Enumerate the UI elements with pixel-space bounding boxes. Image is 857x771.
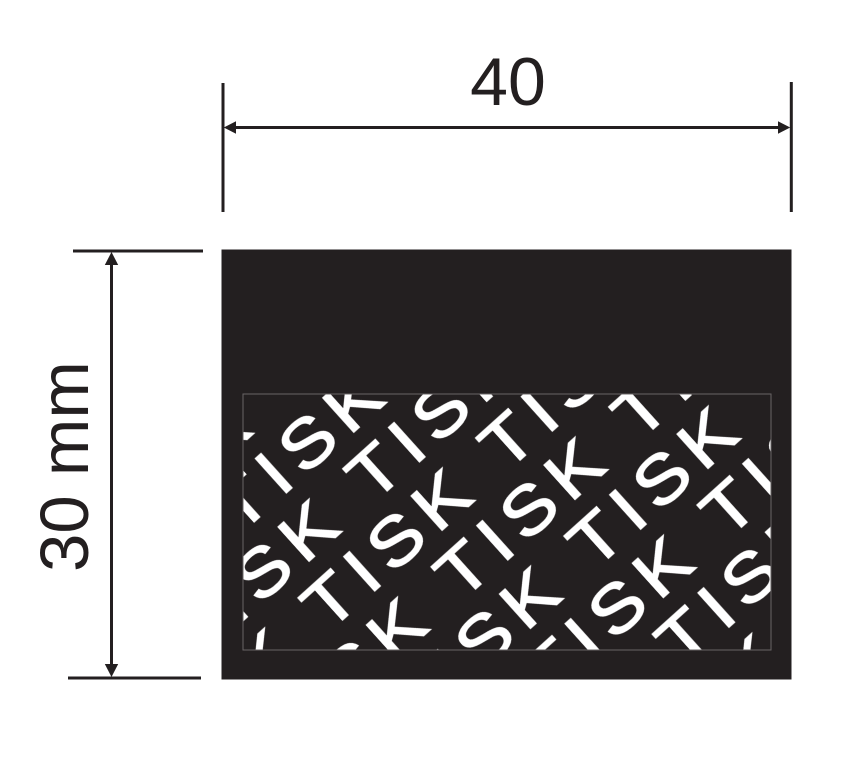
svg-text:30 mm: 30 mm [26, 361, 103, 572]
svg-text:40: 40 [470, 44, 546, 120]
